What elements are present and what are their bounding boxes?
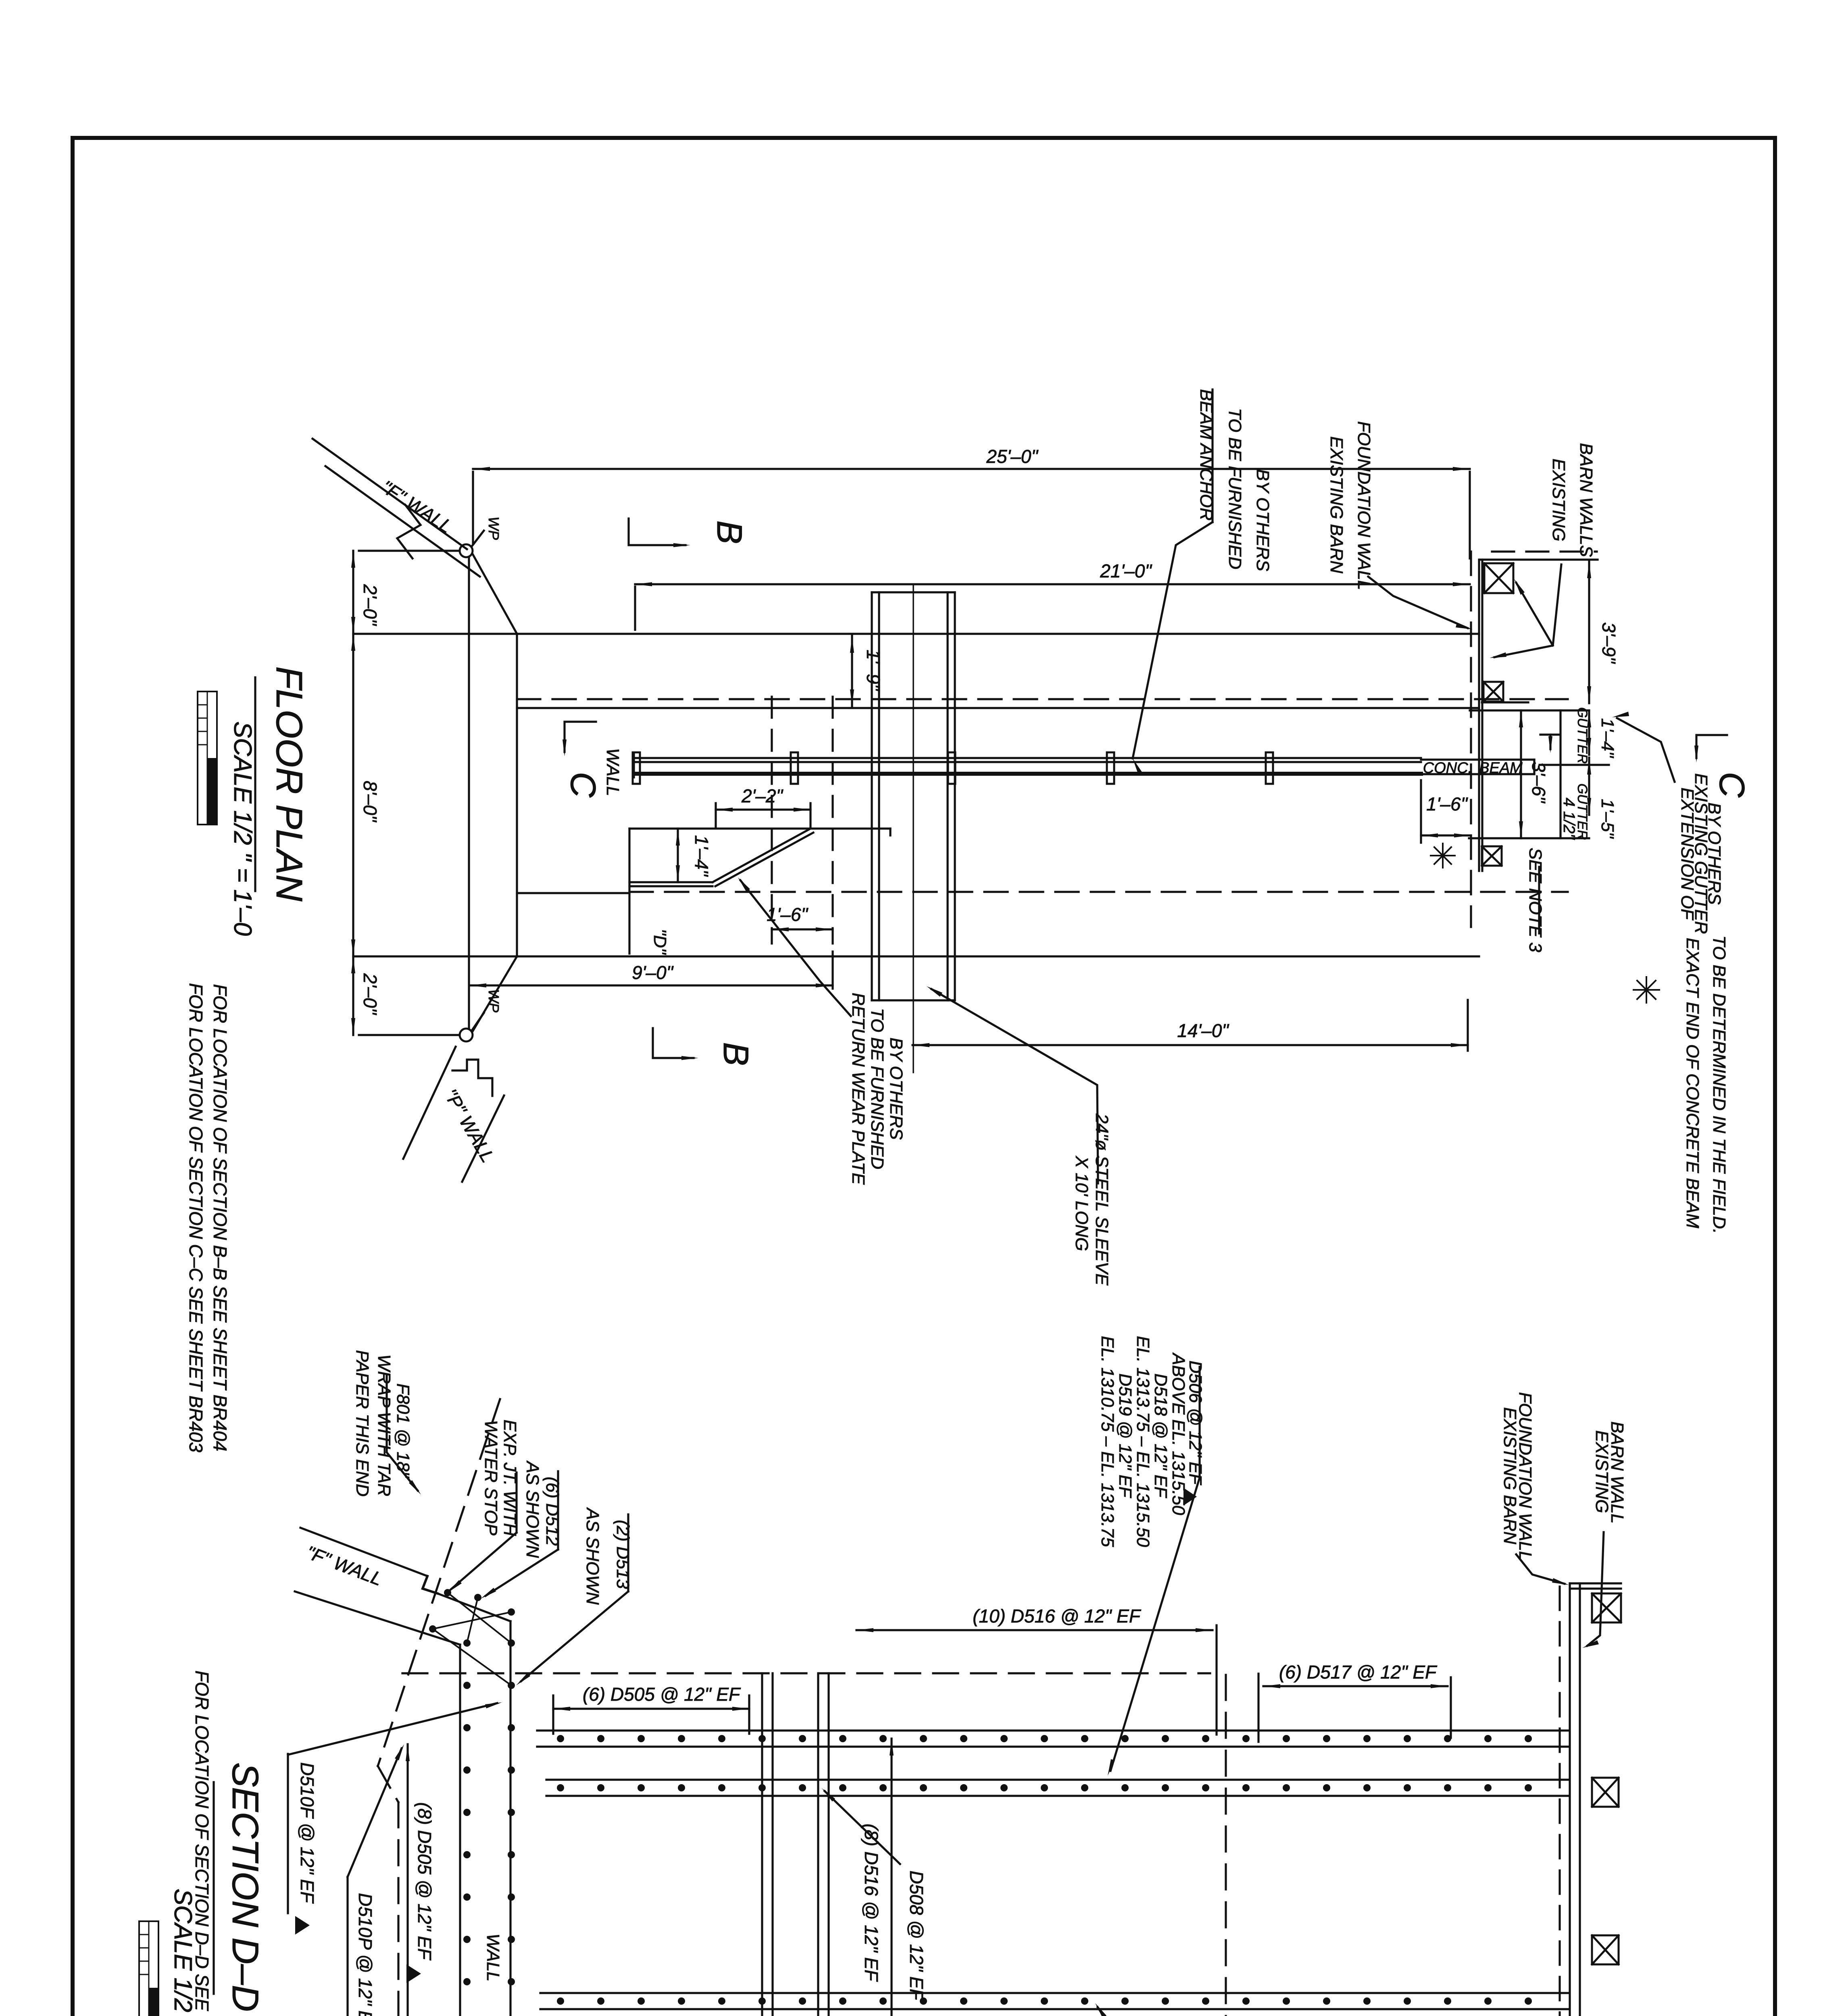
svg-text:EXACT END OF CONCRETE BEAM: EXACT END OF CONCRETE BEAM xyxy=(1683,938,1702,1229)
svg-text:EXISTING: EXISTING xyxy=(1549,458,1569,541)
svg-text:14'–0": 14'–0" xyxy=(1177,1020,1229,1041)
svg-text:(8) D505 @ 12" EF: (8) D505 @ 12" EF xyxy=(414,1802,435,1961)
svg-text:TO BE FURNISHED: TO BE FURNISHED xyxy=(867,1008,887,1169)
svg-text:D510F @ 12" EF: D510F @ 12" EF xyxy=(297,1762,318,1904)
svg-text:B: B xyxy=(716,1042,756,1066)
svg-text:"D": "D" xyxy=(650,929,670,955)
svg-text:WALL: WALL xyxy=(603,748,623,796)
svg-text:1'–5": 1'–5" xyxy=(1598,799,1617,839)
svg-text:1'–4": 1'–4" xyxy=(691,835,712,877)
svg-text:EL. 1310.75 – EL. 1313.75: EL. 1310.75 – EL. 1313.75 xyxy=(1098,1336,1117,1547)
svg-text:(6) D512: (6) D512 xyxy=(542,1477,562,1545)
svg-text:PAPER THIS END: PAPER THIS END xyxy=(352,1350,372,1496)
svg-text:8'–0": 8'–0" xyxy=(360,781,381,823)
svg-text:1'–9": 1'–9" xyxy=(863,650,884,692)
svg-text:BARN WALL: BARN WALL xyxy=(1607,1421,1627,1524)
svg-text:FLOOR PLAN: FLOOR PLAN xyxy=(269,666,310,902)
svg-text:4 1/2": 4 1/2" xyxy=(1560,798,1578,840)
svg-text:(10) D516 @ 12" EF: (10) D516 @ 12" EF xyxy=(973,1606,1142,1627)
svg-text:9'–0": 9'–0" xyxy=(632,962,674,983)
svg-text:FOR LOCATION OF SECTION B–: FOR LOCATION OF SECTION B–B SEE SHEET BR… xyxy=(210,984,231,1452)
svg-text:AS SHOWN: AS SHOWN xyxy=(523,1460,542,1558)
svg-text:BARN WALLS: BARN WALLS xyxy=(1576,443,1596,557)
svg-text:FOUNDATION WALL: FOUNDATION WALL xyxy=(1354,421,1374,590)
svg-text:SCALE 1/2 " = 1'–0: SCALE 1/2 " = 1'–0 xyxy=(229,721,256,936)
svg-text:C: C xyxy=(563,772,603,798)
svg-text:TO BE FURNISHED: TO BE FURNISHED xyxy=(1225,408,1245,569)
svg-text:BY OTHERS: BY OTHERS xyxy=(1704,802,1724,904)
svg-text:WP: WP xyxy=(485,989,502,1012)
svg-text:3'–9": 3'–9" xyxy=(1598,622,1619,664)
svg-text:CONC.: CONC. xyxy=(1423,760,1472,777)
svg-text:21'–0": 21'–0" xyxy=(1100,560,1152,581)
svg-text:(8) D516 @ 12" EF: (8) D516 @ 12" EF xyxy=(861,1824,882,1982)
svg-text:SECTION D–D: SECTION D–D xyxy=(225,1762,266,2012)
svg-text:FOR LOCATION OF SECTION C–: FOR LOCATION OF SECTION C–C SEE SHEET BR… xyxy=(185,983,206,1452)
svg-text:D519 @ 12" EF: D519 @ 12" EF xyxy=(1115,1373,1135,1498)
svg-text:FOUNDATION WALL: FOUNDATION WALL xyxy=(1515,1392,1535,1561)
svg-text:1'–4": 1'–4" xyxy=(1598,718,1617,758)
svg-text:C: C xyxy=(1712,772,1752,798)
svg-text:3'–6": 3'–6" xyxy=(1528,762,1549,804)
svg-text:24"ø STEEL SLEEVE: 24"ø STEEL SLEEVE xyxy=(1092,1113,1112,1285)
svg-text:(6) D517 @ 12" EF: (6) D517 @ 12" EF xyxy=(1279,1662,1438,1683)
svg-text:WALL: WALL xyxy=(483,1933,503,1981)
svg-text:AS SHOWN: AS SHOWN xyxy=(583,1507,602,1605)
svg-text:25'–0": 25'–0" xyxy=(986,446,1039,467)
svg-text:D518 @ 12" EF: D518 @ 12" EF xyxy=(1151,1373,1171,1498)
svg-text:GUTTER: GUTTER xyxy=(1575,707,1590,764)
svg-text:RETURN WEAR PLATE: RETURN WEAR PLATE xyxy=(848,993,868,1185)
svg-text:(6) D505 @ 12" EF: (6) D505 @ 12" EF xyxy=(583,1684,741,1705)
svg-text:2'–0": 2'–0" xyxy=(360,584,381,627)
svg-text:2'–0": 2'–0" xyxy=(360,973,381,1016)
svg-text:1'–6": 1'–6" xyxy=(1426,793,1469,814)
svg-text:BY OTHERS: BY OTHERS xyxy=(1253,469,1273,571)
svg-text:SEE NOTE 3: SEE NOTE 3 xyxy=(1525,848,1545,952)
svg-text:WRAP WITH TAR: WRAP WITH TAR xyxy=(374,1354,394,1496)
svg-text:EXISTING BARN: EXISTING BARN xyxy=(1327,436,1346,573)
svg-text:WP: WP xyxy=(485,516,502,540)
svg-text:ABOVE EL. 1315.50: ABOVE EL. 1315.50 xyxy=(1169,1352,1188,1515)
svg-text:EL. 1313.75 – EL. 1315.50: EL. 1313.75 – EL. 1315.50 xyxy=(1133,1336,1153,1547)
svg-text:B: B xyxy=(710,521,750,544)
svg-text:(2) D513: (2) D513 xyxy=(613,1520,633,1589)
svg-text:X 10' LONG: X 10' LONG xyxy=(1072,1156,1092,1251)
svg-text:WATER STOP: WATER STOP xyxy=(481,1420,501,1536)
svg-text:BY OTHERS: BY OTHERS xyxy=(886,1037,906,1139)
svg-text:BEAM: BEAM xyxy=(1479,760,1523,777)
svg-text:D510P @ 12" EF: D510P @ 12" EF xyxy=(355,1893,376,2016)
svg-text:FOR LOCATION OF SECTION D–: FOR LOCATION OF SECTION D–D SEE SHEET BR… xyxy=(192,1670,213,2016)
svg-text:D508 @ 12" EF: D508 @ 12" EF xyxy=(906,1870,927,2001)
svg-text:2'–2": 2'–2" xyxy=(741,785,784,806)
svg-text:TO BE DETERMINED IN THE FIELD.: TO BE DETERMINED IN THE FIELD. xyxy=(1709,935,1729,1234)
